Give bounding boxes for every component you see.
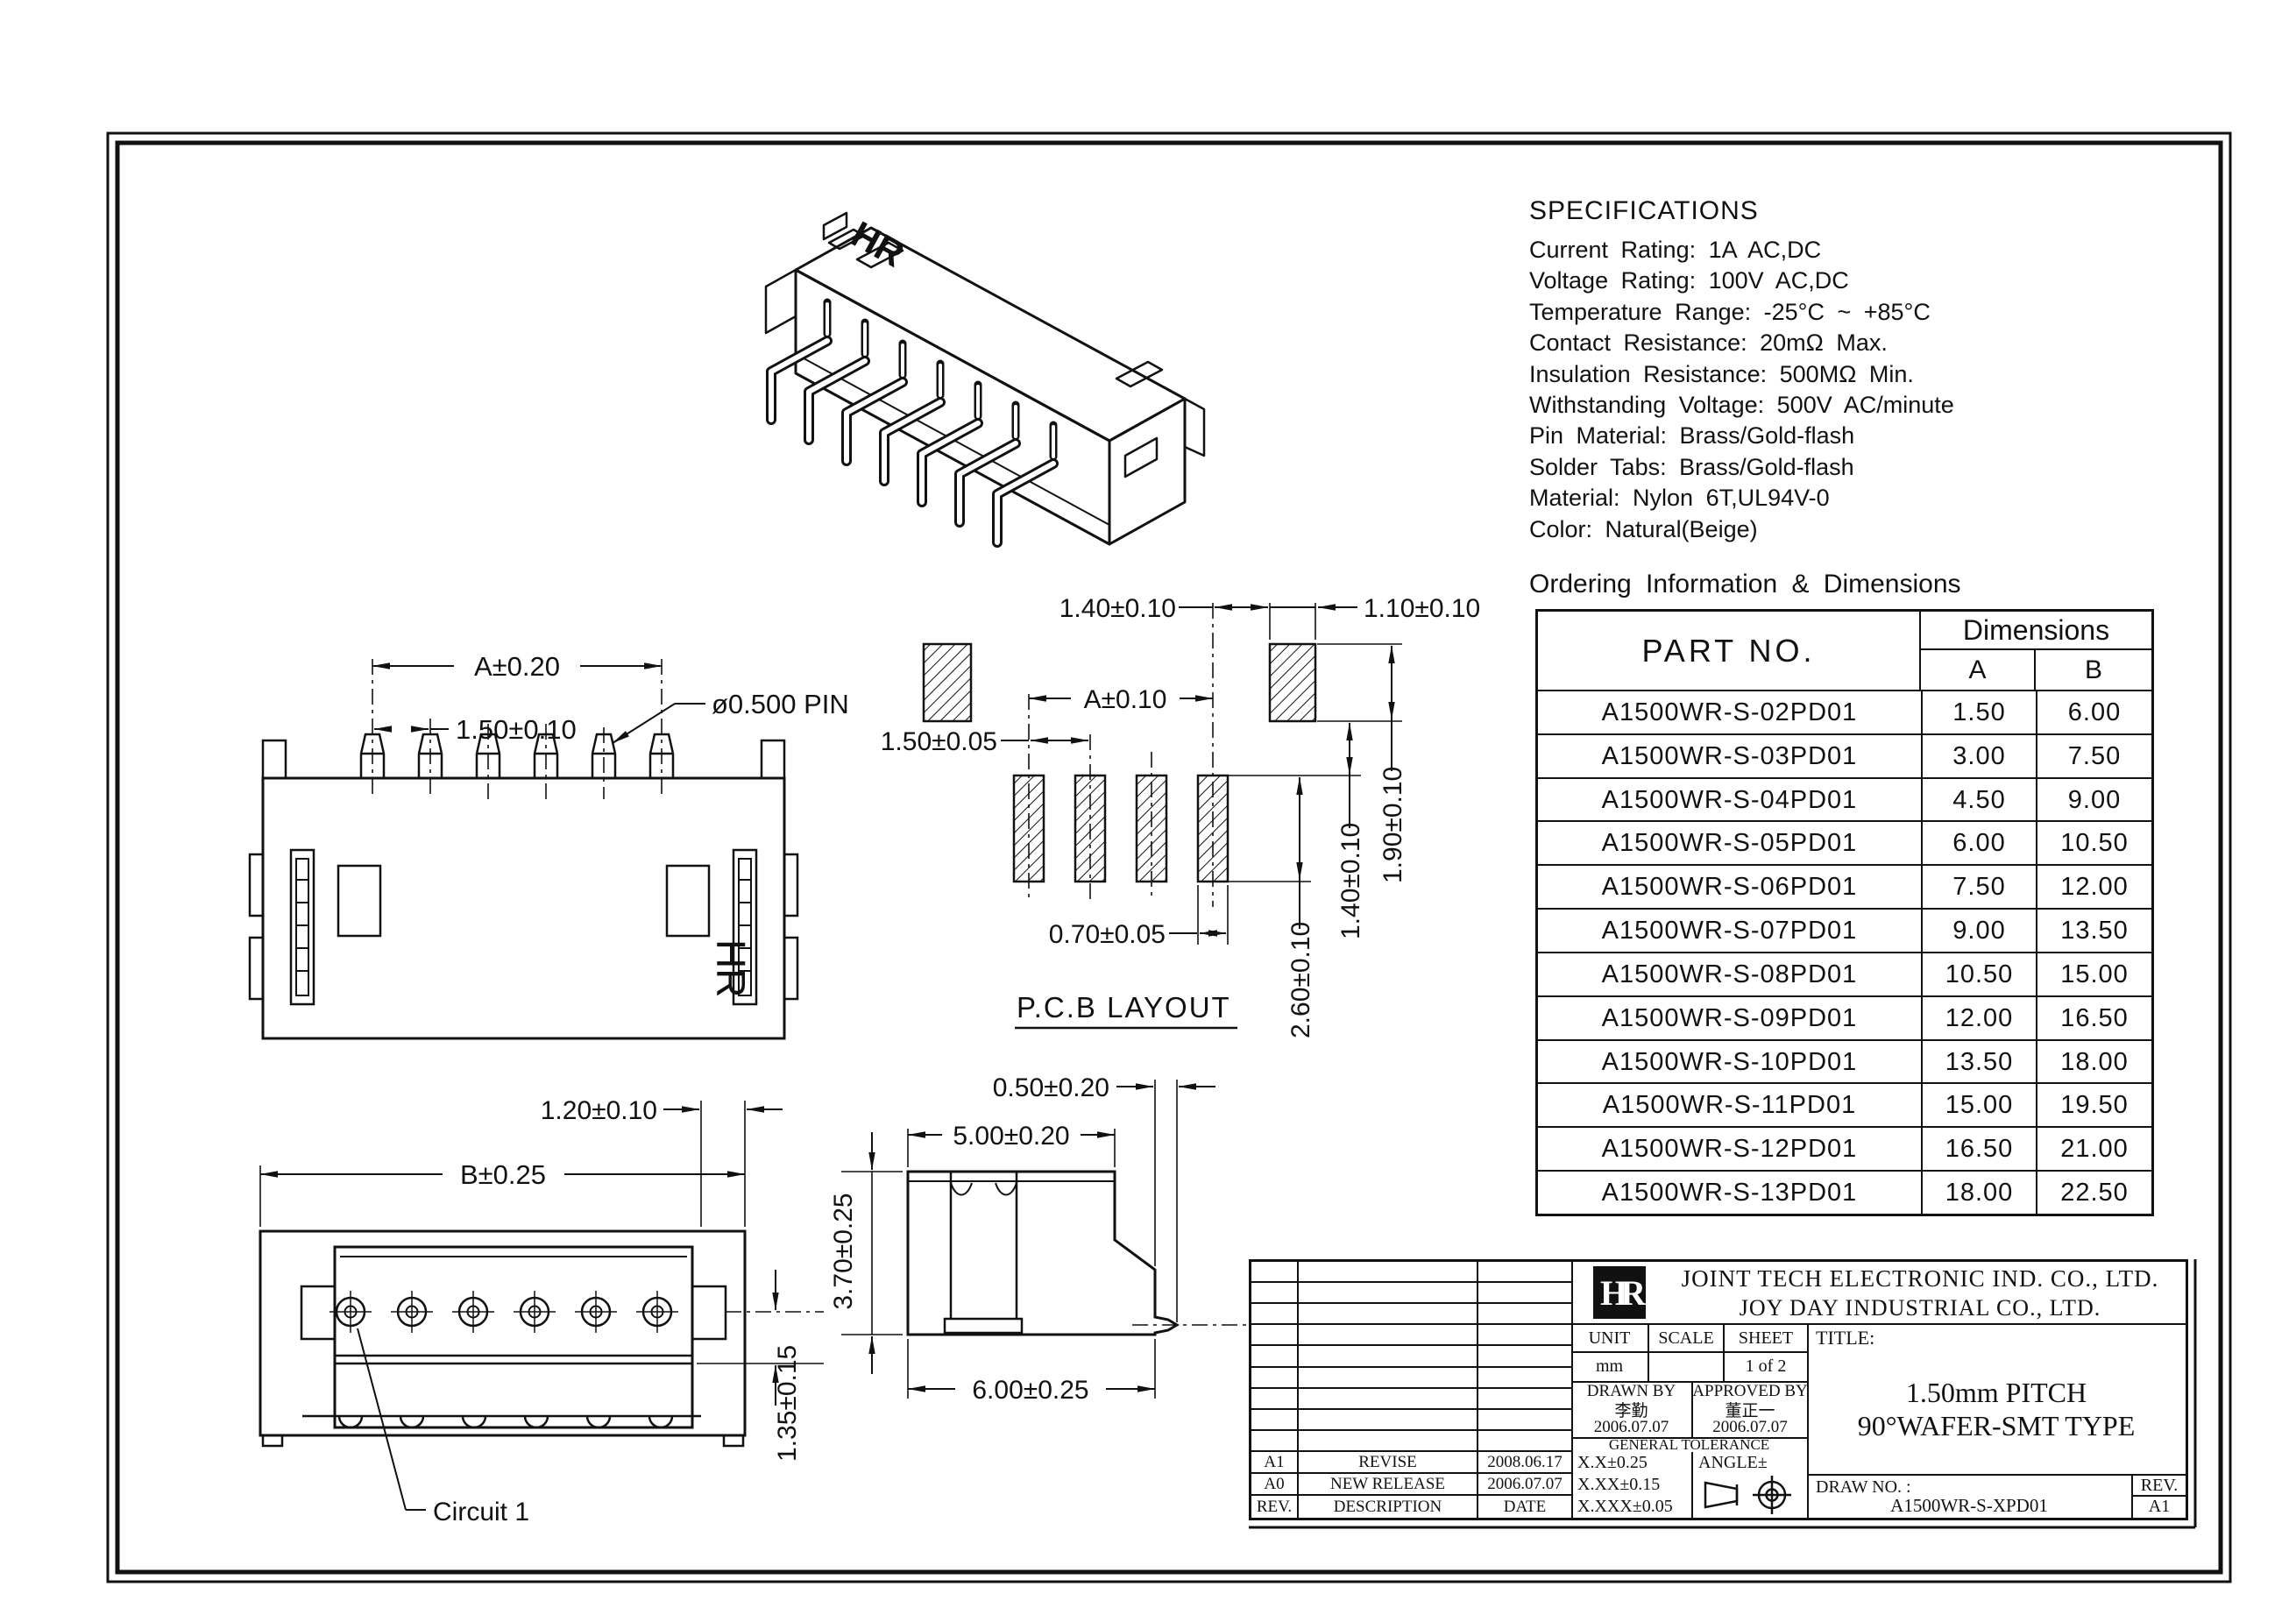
side-view: 0.50±0.20 5.00±0.20 3.70±0.25 6.00±0.25: [829, 1073, 1248, 1405]
side-dim-600: 6.00±0.25: [972, 1376, 1088, 1405]
table-row: A1500WR-S-07PD01 9.00 13.50: [1538, 908, 2151, 952]
revision-row-empty: [1251, 1304, 1571, 1325]
general-tolerance-label: GENERAL TOLERANCE: [1571, 1438, 1807, 1452]
side-dim-050: 0.50±0.20: [993, 1073, 1109, 1102]
sheet-label: SHEET: [1725, 1326, 1807, 1350]
title-block: A1 REVISE 2008.06.17 A0 NEW RELEASE 2006…: [1249, 1259, 2188, 1520]
revision-row-empty: [1251, 1346, 1571, 1368]
company-name-line2: JOY DAY INDUSTRIAL CO., LTD.: [1655, 1293, 2186, 1323]
pcb-dim-a: A±0.10: [1084, 685, 1167, 714]
angle-label: ANGLE±: [1698, 1453, 1805, 1473]
revision-row-empty: [1251, 1368, 1571, 1389]
pcb-dim-070: 0.70±0.05: [1049, 920, 1166, 949]
rev-label: REV.: [2133, 1476, 2186, 1495]
pcb-dim-140-top: 1.40±0.10: [1059, 594, 1176, 623]
tolerance-2: X.XX±0.15: [1577, 1475, 1690, 1495]
specifications-title: SPECIFICATIONS: [1529, 196, 1954, 226]
spec-line: Solder Tabs: Brass/Gold-flash: [1529, 452, 1954, 483]
pcb-dim-150: 1.50±0.05: [881, 727, 997, 756]
approved-by-signature: 董正一: [1693, 1399, 1807, 1419]
pcb-dim-140-side: 1.40±0.10: [1336, 823, 1365, 939]
specifications-block: SPECIFICATIONS Current Rating: 1A AC,DC …: [1529, 196, 1954, 545]
drawing-title-line1: 1.50mm PITCH: [1807, 1376, 2186, 1409]
table-row: A1500WR-S-09PD01 12.00 16.50: [1538, 995, 2151, 1039]
pcb-layout-label: P.C.B LAYOUT: [1017, 991, 1231, 1023]
unit-label: UNIT: [1571, 1326, 1648, 1350]
title-label: TITLE:: [1816, 1327, 1921, 1349]
sheet-value: 1 of 2: [1725, 1354, 1807, 1378]
spec-line: Current Rating: 1A AC,DC: [1529, 235, 1954, 266]
table-row: A1500WR-S-05PD01 6.00 10.50: [1538, 820, 2151, 864]
rev-value: A1: [2133, 1497, 2186, 1516]
drawn-by-date: 2006.07.07: [1571, 1419, 1691, 1436]
table-row: A1500WR-S-08PD01 10.50 15.00: [1538, 952, 2151, 995]
spec-line: Pin Material: Brass/Gold-flash: [1529, 421, 1954, 451]
top-dim-a: A±0.20: [474, 651, 560, 682]
draw-no-value: A1500WR-S-XPD01: [1807, 1495, 2131, 1516]
pcb-layout-view: 1.40±0.10 1.10±0.10 A±0.10 1.50±0.05 0.7…: [881, 594, 1481, 1038]
drawing-sheet: HR: [0, 0, 2296, 1622]
spec-line: Color: Natural(Beige): [1529, 514, 1954, 545]
company-logo-text: HR: [1600, 1272, 1639, 1314]
ordering-heading: Ordering Information & Dimensions: [1529, 570, 1961, 599]
tolerance-3: X.XXX±0.05: [1577, 1497, 1690, 1517]
iso-pins: [771, 302, 1053, 542]
spec-line: Voltage Rating: 100V AC,DC: [1529, 266, 1954, 296]
scale-label: SCALE: [1649, 1326, 1723, 1350]
col-a-header: A: [1921, 650, 2036, 690]
revision-header-row: REV. DESCRIPTION DATE: [1251, 1496, 1571, 1518]
revision-row-empty: [1251, 1262, 1571, 1283]
side-dim-370: 3.70±0.25: [829, 1193, 858, 1309]
revision-row-empty: [1251, 1283, 1571, 1304]
revision-row-empty: [1251, 1410, 1571, 1431]
part-no-header: PART NO.: [1538, 612, 1921, 690]
front-dim-120: 1.20±0.10: [541, 1096, 657, 1125]
front-dim-b: B±0.25: [460, 1159, 546, 1190]
unit-value: mm: [1571, 1354, 1648, 1378]
third-angle-projection-icon: [1697, 1475, 1803, 1515]
pcb-dim-110: 1.10±0.10: [1364, 594, 1480, 623]
col-b-header: B: [2036, 650, 2151, 690]
drawing-title-line2: 90°WAFER-SMT TYPE: [1807, 1409, 2186, 1442]
company-logo: HR: [1593, 1266, 1646, 1319]
spec-line: Contact Resistance: 20mΩ Max.: [1529, 328, 1954, 358]
ordering-table: PART NO. Dimensions A B A1500WR-S-02PD01…: [1535, 609, 2154, 1216]
front-pin-targets: [330, 1291, 678, 1333]
approved-by-date: 2006.07.07: [1693, 1419, 1807, 1436]
iso-brand-mark: HR: [845, 213, 911, 275]
table-row: A1500WR-S-11PD01 15.00 19.50: [1538, 1082, 2151, 1126]
table-row: A1500WR-S-12PD01 16.50 21.00: [1538, 1126, 2151, 1170]
tolerance-1: X.X±0.25: [1577, 1453, 1690, 1473]
revision-row-empty: [1251, 1431, 1571, 1452]
table-row: A1500WR-S-06PD01 7.50 12.00: [1538, 864, 2151, 908]
revision-row-empty: [1251, 1389, 1571, 1410]
table-row: A1500WR-S-03PD01 3.00 7.50: [1538, 733, 2151, 777]
top-dim-pitch: 1.50±0.10: [456, 714, 577, 745]
table-row: A1500WR-S-10PD01 13.50 18.00: [1538, 1039, 2151, 1083]
spec-line: Withstanding Voltage: 500V AC/minute: [1529, 390, 1954, 421]
spec-line: Material: Nylon 6T,UL94V-0: [1529, 483, 1954, 514]
table-row: A1500WR-S-13PD01 18.00 22.50: [1538, 1170, 2151, 1214]
top-brand-mark: HR: [708, 939, 754, 997]
dimensions-header: Dimensions: [1921, 612, 2151, 650]
spec-line: Temperature Range: -25°C ~ +85°C: [1529, 297, 1954, 328]
scale-value: [1649, 1354, 1723, 1378]
isometric-view: HR: [766, 213, 1204, 544]
company-name-line1: JOINT TECH ELECTRONIC IND. CO., LTD.: [1655, 1264, 2186, 1293]
side-dim-500: 5.00±0.20: [953, 1122, 1069, 1151]
front-circuit-label: Circuit 1: [433, 1498, 529, 1526]
table-row: A1500WR-S-04PD01 4.50 9.00: [1538, 777, 2151, 821]
spec-line: Insulation Resistance: 500MΩ Min.: [1529, 359, 1954, 390]
pcb-dim-190: 1.90±0.10: [1378, 767, 1407, 883]
front-dim-135: 1.35±0.15: [773, 1345, 802, 1462]
table-row: A1500WR-S-02PD01 1.50 6.00: [1538, 690, 2151, 733]
top-pin-label: ø0.500 PIN: [712, 689, 849, 719]
revision-row: A1 REVISE 2008.06.17: [1251, 1452, 1571, 1474]
drawn-by-signature: 李勤: [1571, 1399, 1691, 1419]
pcb-dim-260: 2.60±0.10: [1286, 922, 1315, 1038]
front-view: B±0.25 1.20±0.10 1.35±0.15 Circuit 1: [260, 1096, 824, 1526]
top-view: A±0.20 1.50±0.10 ø0.500 PIN HR: [250, 651, 849, 1038]
revision-row-empty: [1251, 1325, 1571, 1346]
revision-row: A0 NEW RELEASE 2006.07.07: [1251, 1474, 1571, 1496]
